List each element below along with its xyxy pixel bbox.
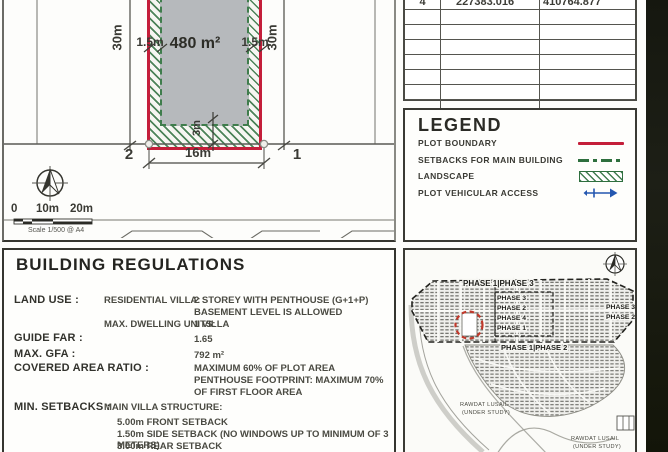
easting-cell: 227383.016: [441, 0, 540, 9]
phase-label-top: PHASE 1|PHASE 3: [463, 279, 534, 288]
guide-far-label: GUIDE FAR :: [14, 332, 83, 344]
guide-far-value: 1.65: [194, 334, 213, 345]
scale-caption: Scale 1/500 @ A4: [28, 227, 84, 234]
phase-label-right-2: PHASE 2: [606, 314, 635, 321]
covered-area-value1: MAXIMUM 60% OF PLOT AREA: [194, 363, 394, 374]
green-dashed-line-symbol: [578, 159, 624, 162]
corner-marker-2: [145, 140, 152, 147]
covered-area-ratio-label: COVERED AREA RATIO :: [14, 362, 149, 374]
scale-10m-label: 10m: [36, 203, 59, 215]
area-note-1-line2: (UNDER STUDY): [462, 410, 510, 416]
phase-label-right-1: PHASE 3: [606, 304, 635, 311]
table-row-empty: [405, 85, 635, 100]
site-plan-panel: PHASE 1|PHASE 3 PHASE 3 PHASE 2 PHASE 4 …: [403, 248, 637, 452]
scale-0-label: 0: [11, 203, 17, 215]
legend-title: LEGEND: [418, 115, 502, 136]
northing-cell: 410764.877: [540, 0, 635, 9]
land-use-value1a: 2 STOREY WITH PENTHOUSE (G+1+P): [194, 295, 394, 306]
point-number-cell: 4: [405, 0, 441, 9]
min-setbacks-key: MAIN VILLA STRUCTURE:: [104, 402, 222, 413]
phase-label-stack-3: PHASE 4: [497, 315, 526, 322]
phase-label-stack-4: PHASE 1: [497, 325, 526, 332]
north-compass-icon: [32, 166, 68, 201]
building-regulations-panel: BUILDING REGULATIONS LAND USE : RESIDENT…: [2, 248, 396, 452]
table-row-empty: [405, 25, 635, 40]
dim-rear-setback: 3m: [191, 114, 203, 142]
legend-item-landscape: LANDSCAPE: [418, 169, 626, 183]
max-gfa-value: 792 m²: [194, 350, 224, 361]
legend-item-plot-boundary: PLOT BOUNDARY: [418, 136, 626, 150]
site-plan-map: PHASE 1|PHASE 3 PHASE 3 PHASE 2 PHASE 4 …: [405, 250, 635, 452]
land-use-value1b: BASEMENT LEVEL IS ALLOWED: [194, 307, 394, 318]
corner-label-1: 1: [289, 146, 305, 163]
corner-marker-1: [260, 140, 267, 147]
legend-panel: LEGEND PLOT BOUNDARY SETBACKS FOR MAIN B…: [403, 108, 637, 242]
max-gfa-label: MAX. GFA :: [14, 348, 75, 360]
min-setbacks-label: MIN. SETBACKS :: [14, 401, 111, 413]
table-row-empty: [405, 40, 635, 55]
coordinates-table: 4 227383.016 410764.877: [403, 0, 637, 101]
scale-20m-label: 20m: [70, 203, 93, 215]
area-note-2-line2: (UNDER STUDY): [573, 444, 621, 450]
plot-plan-document: 30m 30m 1.5m 1.5m 480 m² 3m 16m 2 1 0 10…: [0, 0, 668, 452]
dim-side-setback-right: 1.5m: [237, 35, 273, 49]
land-use-label: LAND USE :: [14, 294, 79, 306]
legend-item-setbacks: SETBACKS FOR MAIN BUILDING: [418, 153, 626, 167]
siteplan-compass-icon: [603, 252, 627, 276]
phase-label-stack-1: PHASE 3: [497, 295, 526, 302]
land-use-key1: RESIDENTIAL VILLA:: [104, 295, 200, 306]
corner-label-2: 2: [121, 146, 137, 163]
table-row-empty: [405, 55, 635, 70]
front-setback-item: 5.00m FRONT SETBACK: [117, 417, 228, 428]
building-regulations-title: BUILDING REGULATIONS: [16, 255, 245, 275]
red-line-symbol: [578, 142, 624, 145]
subject-plot: [462, 313, 477, 336]
green-hatch-symbol: [579, 171, 623, 182]
rear-setback-item: 3.00m REAR SETBACK: [117, 441, 222, 452]
blue-arrow-symbol: [583, 187, 619, 199]
area-note-1-line1: RAWDAT LUSAIL: [460, 402, 508, 408]
scan-edge-strip: [646, 0, 668, 452]
building-cluster: [617, 416, 634, 430]
table-row-empty: [405, 70, 635, 85]
phase-label-stack-2: PHASE 2: [497, 305, 526, 312]
dim-side-setback-left: 1.5m: [132, 35, 168, 49]
max-dwelling-units-value: 1 VILLA: [194, 319, 229, 330]
table-row-empty: [405, 10, 635, 25]
table-row: 4 227383.016 410764.877: [405, 0, 635, 10]
phase-label-mid: PHASE 1|PHASE 2: [501, 343, 567, 352]
scale-bar: [14, 219, 92, 224]
plot-drawing-panel: 30m 30m 1.5m 1.5m 480 m² 3m 16m 2 1 0 10…: [2, 0, 396, 242]
dim-16m: 16m: [178, 145, 218, 160]
area-note-2-line1: RAWDAT LUSAIL: [571, 436, 619, 442]
plot-area-label: 480 m²: [165, 35, 225, 53]
legend-item-vehicular-access: PLOT VEHICULAR ACCESS: [418, 186, 626, 200]
covered-area-value2: PENTHOUSE FOOTPRINT: MAXIMUM 70% OF FIRS…: [194, 375, 390, 399]
dim-30m-left: 30m: [110, 18, 125, 58]
